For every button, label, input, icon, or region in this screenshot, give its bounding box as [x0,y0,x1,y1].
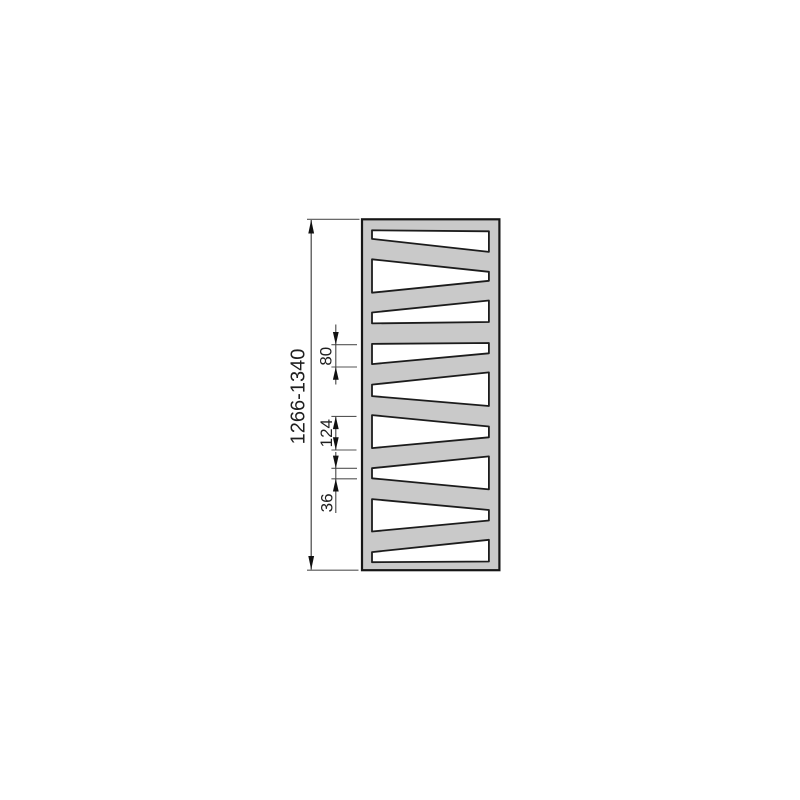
svg-text:36: 36 [318,493,337,512]
svg-text:1266-1340: 1266-1340 [287,349,309,445]
svg-text:80: 80 [316,347,335,366]
svg-text:124: 124 [317,419,336,447]
